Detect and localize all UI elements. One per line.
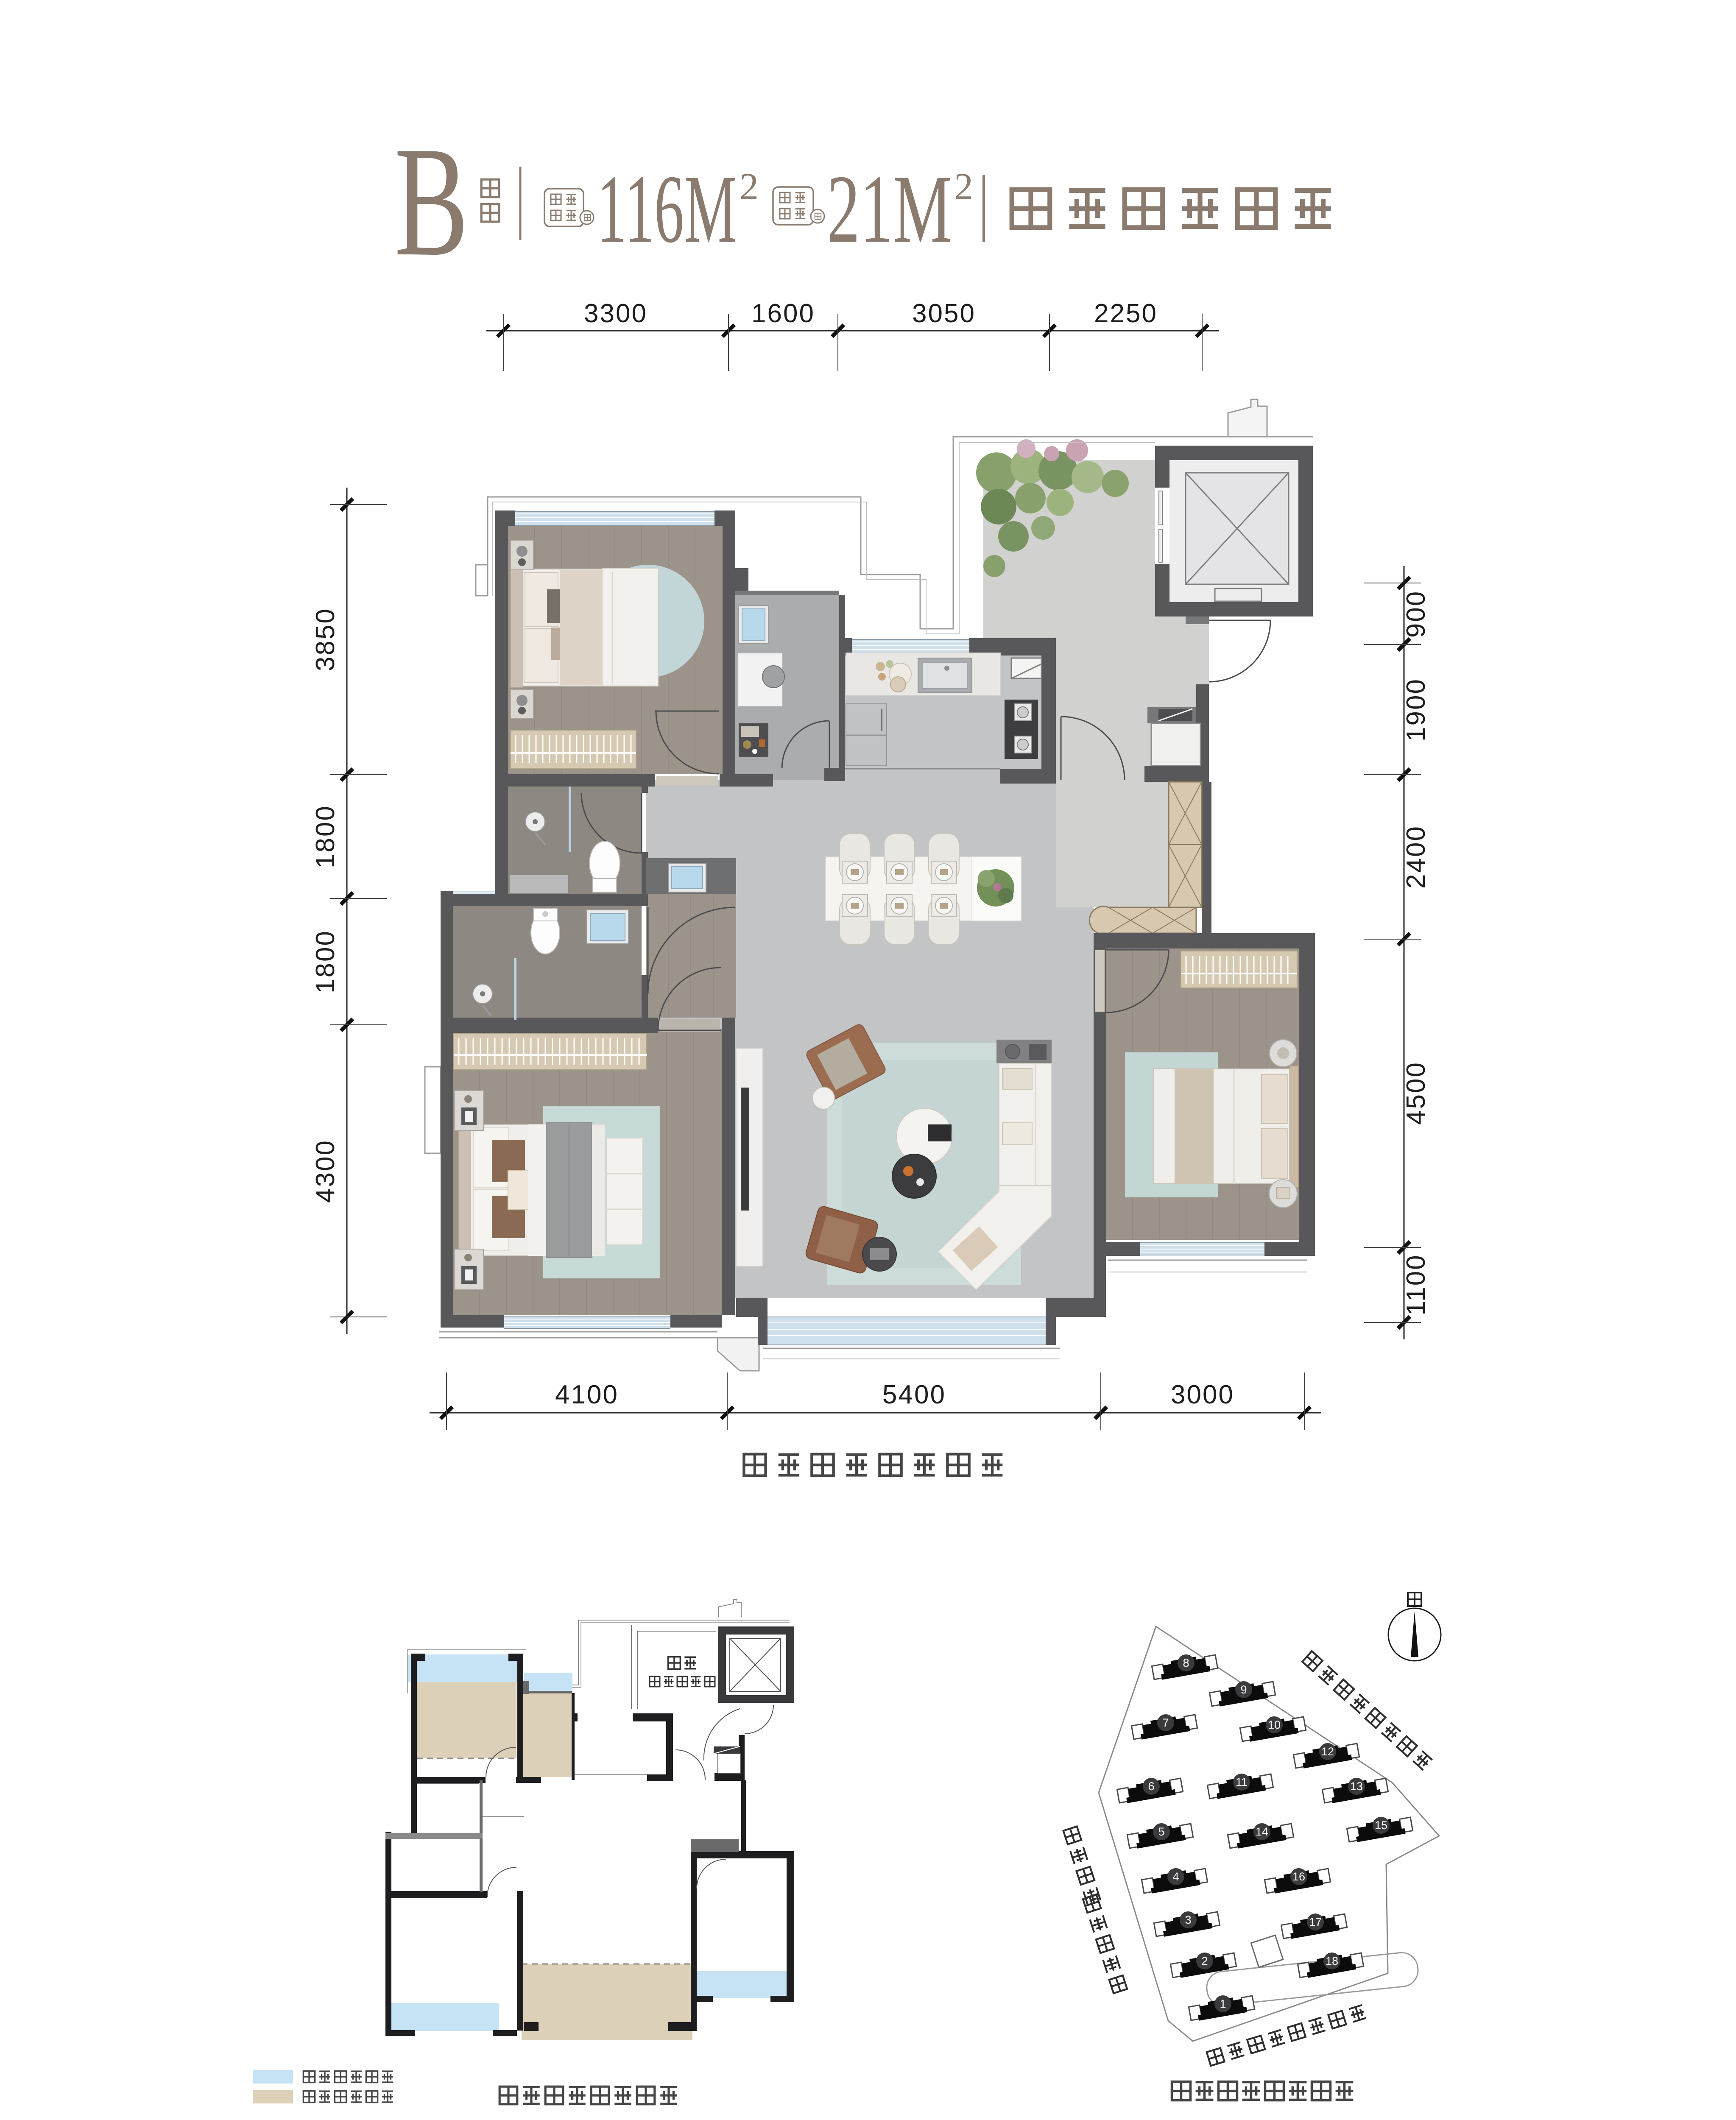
- svg-text:10: 10: [1268, 1718, 1281, 1731]
- svg-text:1: 1: [1220, 1997, 1226, 2010]
- svg-text:3: 3: [1185, 1914, 1191, 1926]
- svg-text:12: 12: [1321, 1745, 1334, 1758]
- svg-text:1600: 1600: [751, 299, 815, 328]
- svg-text:7: 7: [1162, 1716, 1169, 1729]
- svg-text:16: 16: [1292, 1870, 1305, 1883]
- svg-text:13: 13: [1350, 1780, 1363, 1793]
- svg-text:14: 14: [1256, 1825, 1268, 1838]
- svg-text:3850: 3850: [311, 608, 340, 671]
- svg-text:2: 2: [1201, 1955, 1208, 1967]
- svg-text:4100: 4100: [555, 1380, 619, 1409]
- svg-text:15: 15: [1375, 1819, 1387, 1832]
- svg-text:2: 2: [954, 166, 973, 208]
- svg-text:5400: 5400: [882, 1380, 946, 1409]
- svg-text:2400: 2400: [1401, 825, 1431, 889]
- svg-text:4: 4: [1172, 1870, 1179, 1883]
- svg-text:3000: 3000: [1171, 1380, 1234, 1409]
- svg-text:18: 18: [1326, 1955, 1338, 1967]
- svg-text:1100: 1100: [1401, 1254, 1431, 1315]
- svg-text:5: 5: [1158, 1825, 1164, 1838]
- svg-text:3300: 3300: [584, 299, 648, 328]
- svg-text:900: 900: [1401, 590, 1431, 638]
- svg-text:1900: 1900: [1401, 678, 1431, 742]
- svg-text:4300: 4300: [311, 1139, 340, 1203]
- svg-text:2250: 2250: [1094, 299, 1158, 328]
- svg-text:6: 6: [1148, 1780, 1154, 1793]
- svg-text:B: B: [394, 114, 469, 289]
- svg-text:11: 11: [1236, 1776, 1248, 1788]
- svg-text:9: 9: [1240, 1683, 1247, 1696]
- svg-text:1800: 1800: [311, 930, 340, 993]
- svg-text:1800: 1800: [311, 805, 340, 868]
- svg-text:116M: 116M: [597, 155, 737, 263]
- svg-text:2: 2: [740, 166, 759, 208]
- svg-text:8: 8: [1183, 1657, 1189, 1669]
- svg-text:17: 17: [1309, 1916, 1322, 1928]
- svg-text:4500: 4500: [1401, 1061, 1431, 1125]
- svg-text:21M: 21M: [827, 155, 952, 263]
- svg-text:3050: 3050: [912, 299, 976, 328]
